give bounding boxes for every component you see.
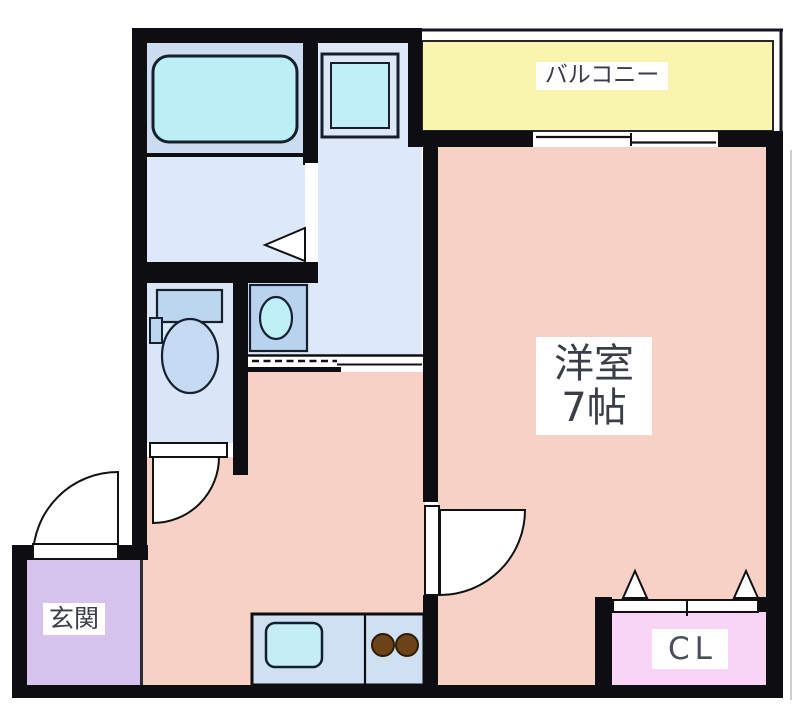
closet-door-fold-marker-left: [623, 571, 647, 598]
toilet-doorway: [150, 443, 227, 457]
main-room-door-leaf: [425, 506, 439, 595]
closet-label-text: CL: [668, 632, 717, 666]
bathtub: [153, 56, 297, 142]
closet-door-fold-marker-right: [734, 571, 758, 598]
stove-burner-left: [372, 634, 394, 656]
main-room-size: 7帖: [561, 386, 626, 430]
entrance-label: 玄関: [43, 603, 105, 635]
washing-machine: [331, 63, 389, 128]
floor-plan: バルコニー 洋室 7帖 玄関 CL: [0, 0, 800, 707]
washbasin-bowl: [260, 297, 292, 339]
main-room-label: 洋室 7帖: [536, 337, 652, 435]
toilet-flush-handle: [150, 318, 162, 343]
balcony-label-text: バルコニー: [545, 63, 660, 88]
balcony-window-band: [533, 132, 718, 147]
toilet-door-swing: [153, 457, 219, 523]
closet-folding-door-track: [613, 600, 758, 612]
bathroom-door-triangle: [265, 228, 305, 261]
entrance-label-text: 玄関: [49, 605, 99, 633]
entrance-door-leaf: [33, 544, 118, 559]
toilet-tank: [157, 290, 222, 322]
main-room-name: 洋室: [554, 342, 634, 386]
bathroom-doorway: [305, 163, 318, 260]
balcony-label: バルコニー: [536, 62, 668, 90]
stove-burner-right: [396, 634, 418, 656]
fixtures-layer: [0, 0, 800, 707]
kitchen-sink: [266, 623, 322, 667]
main-room-door-swing: [440, 510, 525, 595]
closet-label: CL: [652, 629, 728, 669]
toilet-bowl: [162, 319, 218, 393]
